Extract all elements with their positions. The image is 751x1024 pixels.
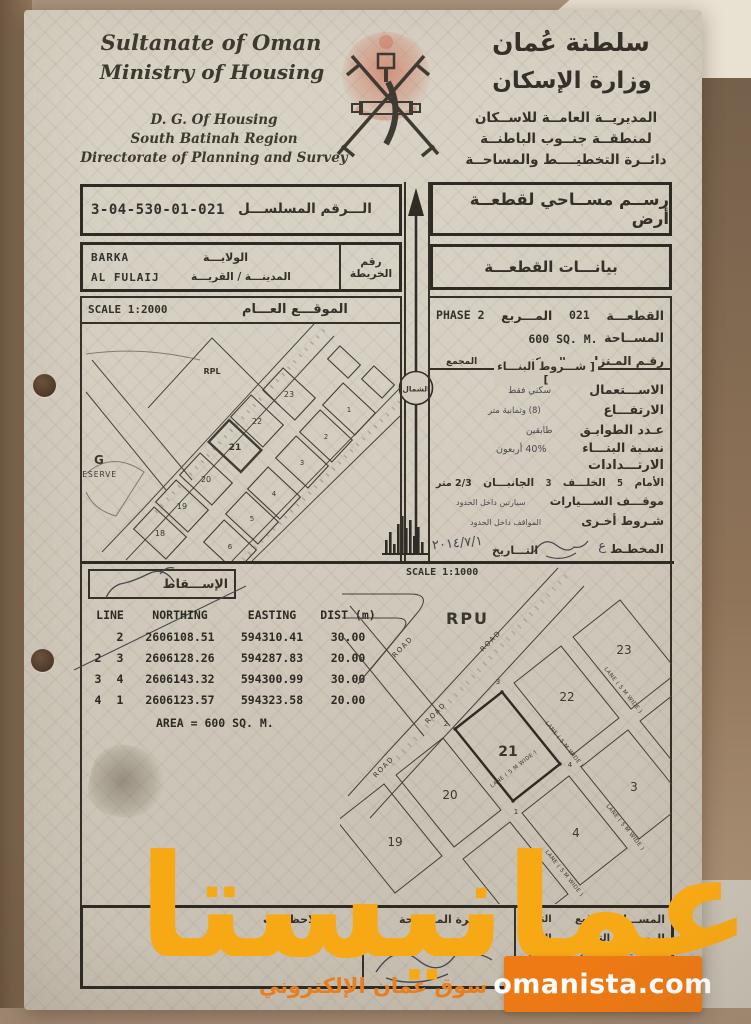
height-label: الارتفـــاع	[603, 402, 664, 417]
area-value: 600 SQ. M.	[508, 332, 618, 346]
serial-number-box: 3-04-530-01-021 الـــرقم المسلســـل	[80, 184, 402, 236]
ministry-title-en: Ministry of Housing	[92, 60, 332, 84]
plot-details-panel: القطعـــة 021 المـــربع PHASE 2 المســاح…	[428, 296, 672, 563]
svg-text:19: 19	[177, 502, 187, 511]
cell-from	[88, 630, 108, 644]
svg-text:6: 6	[228, 543, 233, 551]
town-value: AL FULAIJ	[91, 271, 160, 284]
parking-label: موقـــف الســـيارات	[550, 494, 664, 508]
table-row: 3 4 2606143.32 594300.99 30.00	[88, 672, 380, 686]
cell-northing: 2606143.32	[132, 672, 228, 686]
setbacks-row: الأمام 5 الخلـــف 3 الجانبـــان 2/3 متر	[436, 477, 664, 489]
country-title-ar: سلطنة عُمان	[462, 28, 680, 57]
punch-hole-top	[33, 374, 56, 397]
front-setback-value: 5	[617, 478, 623, 489]
plot-number-label: القطعـــة	[606, 308, 664, 323]
cell-from: 3	[88, 672, 108, 686]
svg-text:1: 1	[347, 406, 351, 414]
country-title-en: Sultanate of Oman	[86, 30, 336, 55]
front-setback-label: الأمام	[634, 477, 664, 489]
block-value: PHASE 2	[436, 308, 484, 322]
document-title-box: رســم مســاحي لقطعــة أرض	[430, 182, 672, 236]
house-number-label: رقـم المـنزل	[588, 354, 664, 368]
parking-value-handwritten: سيارتين داخل الحدود	[456, 498, 525, 507]
svg-text:20: 20	[201, 475, 211, 484]
planner-date-label: التـــاريخ	[492, 544, 538, 557]
cell-easting: 594310.41	[228, 630, 316, 644]
ratio-label: نسـبة البنـــاء	[582, 440, 664, 455]
cell-from: 2	[88, 651, 108, 665]
punch-hole-bottom	[31, 649, 54, 672]
ministry-title-ar: وزارة الإسكان	[472, 68, 672, 94]
svg-text:4: 4	[272, 490, 277, 498]
svg-text:2: 2	[444, 720, 448, 728]
coordinates-table: LINE NORTHING EASTING DIST (m) 2 2606108…	[88, 604, 374, 732]
general-map-drawing: RPL G RESERVE 23 22 21 20 19 18 1 2 3 4 …	[82, 324, 400, 561]
svg-text:3: 3	[300, 459, 304, 467]
floors-label: عـدد الطوابـق	[580, 422, 664, 437]
ratio-value-handwritten: 40% أربعون	[496, 444, 546, 455]
svg-text:3: 3	[630, 780, 638, 794]
dept-en-line2: South Batinah Region	[96, 131, 332, 147]
col-line: LINE	[88, 608, 132, 622]
north-label: الشمال	[402, 385, 429, 394]
use-value-handwritten: سكني فقط	[508, 386, 551, 396]
col-easting: EASTING	[228, 608, 316, 622]
planner-signature-scribble	[530, 530, 592, 560]
scanned-land-survey-document: Sultanate of Oman Ministry of Housing D.…	[0, 0, 751, 1024]
planner-date-handwritten: ٢٠١٤/٧/١	[431, 534, 483, 553]
map-rpl-label: RPL	[203, 367, 220, 376]
svg-text:3: 3	[496, 678, 500, 686]
site-rpu-label: RPU	[446, 609, 489, 628]
general-map-title: الموقـــع العـــام	[242, 302, 392, 317]
cell-northing: 2606128.26	[132, 651, 228, 665]
back-setback-label: الخلـــف	[563, 477, 606, 489]
area-total: AREA = 600 SQ. M.	[156, 716, 274, 730]
plot-number-value: 021	[569, 308, 590, 322]
svg-text:LANE ( 5 M WIDE ): LANE ( 5 M WIDE )	[602, 666, 643, 714]
watermark-website-badge: omanista.com	[504, 956, 702, 1012]
block-label: المـــربع	[501, 308, 552, 323]
coordinates-header-row: LINE NORTHING EASTING DIST (m)	[88, 608, 380, 622]
height-value-handwritten: (8) وثمانية متر	[488, 406, 541, 416]
serial-number-label: الـــرقم المسلســـل	[219, 201, 391, 217]
dept-ar-line1: المديريــة العامــة للاســكان	[446, 110, 686, 126]
cell-easting: 594287.83	[228, 651, 316, 665]
svg-text:ROAD: ROAD	[479, 629, 503, 654]
col-northing: NORTHING	[132, 608, 228, 622]
map-number-label: رقم الخريطة	[341, 245, 401, 291]
svg-text:23: 23	[616, 643, 631, 657]
general-map-panel: SCALE 1:2000 الموقـــع العـــام	[80, 296, 402, 563]
svg-text:18: 18	[155, 529, 165, 538]
dept-en-line1: D. G. Of Housing	[96, 112, 332, 128]
use-label: الاســـتعمال	[589, 382, 664, 397]
svg-text:22: 22	[252, 417, 262, 426]
cell-from: 4	[88, 693, 108, 707]
general-map-scale: SCALE 1:2000	[88, 303, 167, 316]
plot-data-title-box: بيانـــات القطعـــة	[430, 244, 672, 290]
svg-text:5: 5	[250, 515, 254, 523]
dept-ar-line3: دائــرة التخطيــــط والمساحــة	[446, 152, 686, 168]
plot-data-title: بيانـــات القطعـــة	[484, 258, 617, 276]
document-title: رســم مســاحي لقطعــة أرض	[433, 190, 669, 228]
table-row: 2 3 2606128.26 594287.83 20.00	[88, 651, 380, 665]
svg-text:ROAD: ROAD	[372, 755, 396, 780]
planner-initial-handwritten: ع	[598, 539, 606, 554]
svg-text:4: 4	[568, 761, 573, 769]
cell-easting: 594323.58	[228, 693, 316, 707]
table-row: 4 1 2606123.57 594323.58 20.00	[88, 693, 380, 707]
svg-text:22: 22	[559, 690, 574, 704]
map-g-label: G	[94, 453, 104, 467]
cell-to: 3	[108, 651, 132, 665]
floors-value-handwritten: طابقين	[526, 426, 553, 436]
other-terms-label: شـروط أخـرى	[581, 514, 664, 528]
planner-label: المخطـط	[610, 542, 664, 556]
back-setback-value: 3	[545, 478, 551, 489]
cell-to: 4	[108, 672, 132, 686]
oman-national-emblem	[322, 24, 454, 170]
watermark-tagline: سوق عمان الإلكتروني	[238, 974, 508, 998]
map-reserve-label: RESERVE	[82, 470, 117, 479]
dept-ar-line2: لمنطقــة جنــوب الباطنــة	[446, 131, 686, 147]
other-terms-value-handwritten: المواقف داخل الحدود	[470, 518, 541, 527]
wilayat-label: الولايـــة	[203, 251, 336, 264]
wilayat-value: BARKA	[91, 251, 129, 264]
dept-en-line3: Directorate of Planning and Survey	[80, 150, 348, 166]
sides-setback-value: 2/3 متر	[436, 478, 472, 489]
svg-text:21: 21	[498, 744, 517, 760]
svg-text:21: 21	[229, 443, 242, 453]
table-row: 2 2606108.51 594310.41 30.00	[88, 630, 380, 644]
svg-text:2: 2	[324, 433, 328, 441]
sides-setback-label: الجانبـــان	[483, 477, 534, 489]
svg-text:1: 1	[514, 808, 518, 816]
town-label: المدينـــة / القريـــة	[191, 271, 336, 283]
plot-row: القطعـــة 021 المـــربع PHASE 2	[436, 306, 664, 324]
cell-northing: 2606108.51	[132, 630, 228, 644]
building-terms-title: [ شـــروط البنـــاء ]	[494, 360, 598, 386]
north-arrow-head	[408, 188, 424, 216]
complex-label: المجمع	[446, 357, 477, 367]
cell-easting: 594300.99	[228, 672, 316, 686]
cell-to: 2	[108, 630, 132, 644]
svg-text:20: 20	[442, 788, 457, 802]
site-road-labels: ROAD ROAD ROAD ROAD	[372, 629, 503, 780]
cell-to: 1	[108, 693, 132, 707]
location-box: BARKA AL FULAIJ الولايـــة المدينـــة / …	[80, 242, 402, 292]
svg-text:LANE ( 5 M WIDE ): LANE ( 5 M WIDE )	[543, 720, 584, 768]
setbacks-title: الارتـــدادات	[588, 458, 664, 473]
svg-text:23: 23	[284, 390, 294, 399]
cell-northing: 2606123.57	[132, 693, 228, 707]
svg-text:ROAD: ROAD	[391, 635, 415, 660]
watermark-website: omanista.com	[493, 969, 713, 1000]
